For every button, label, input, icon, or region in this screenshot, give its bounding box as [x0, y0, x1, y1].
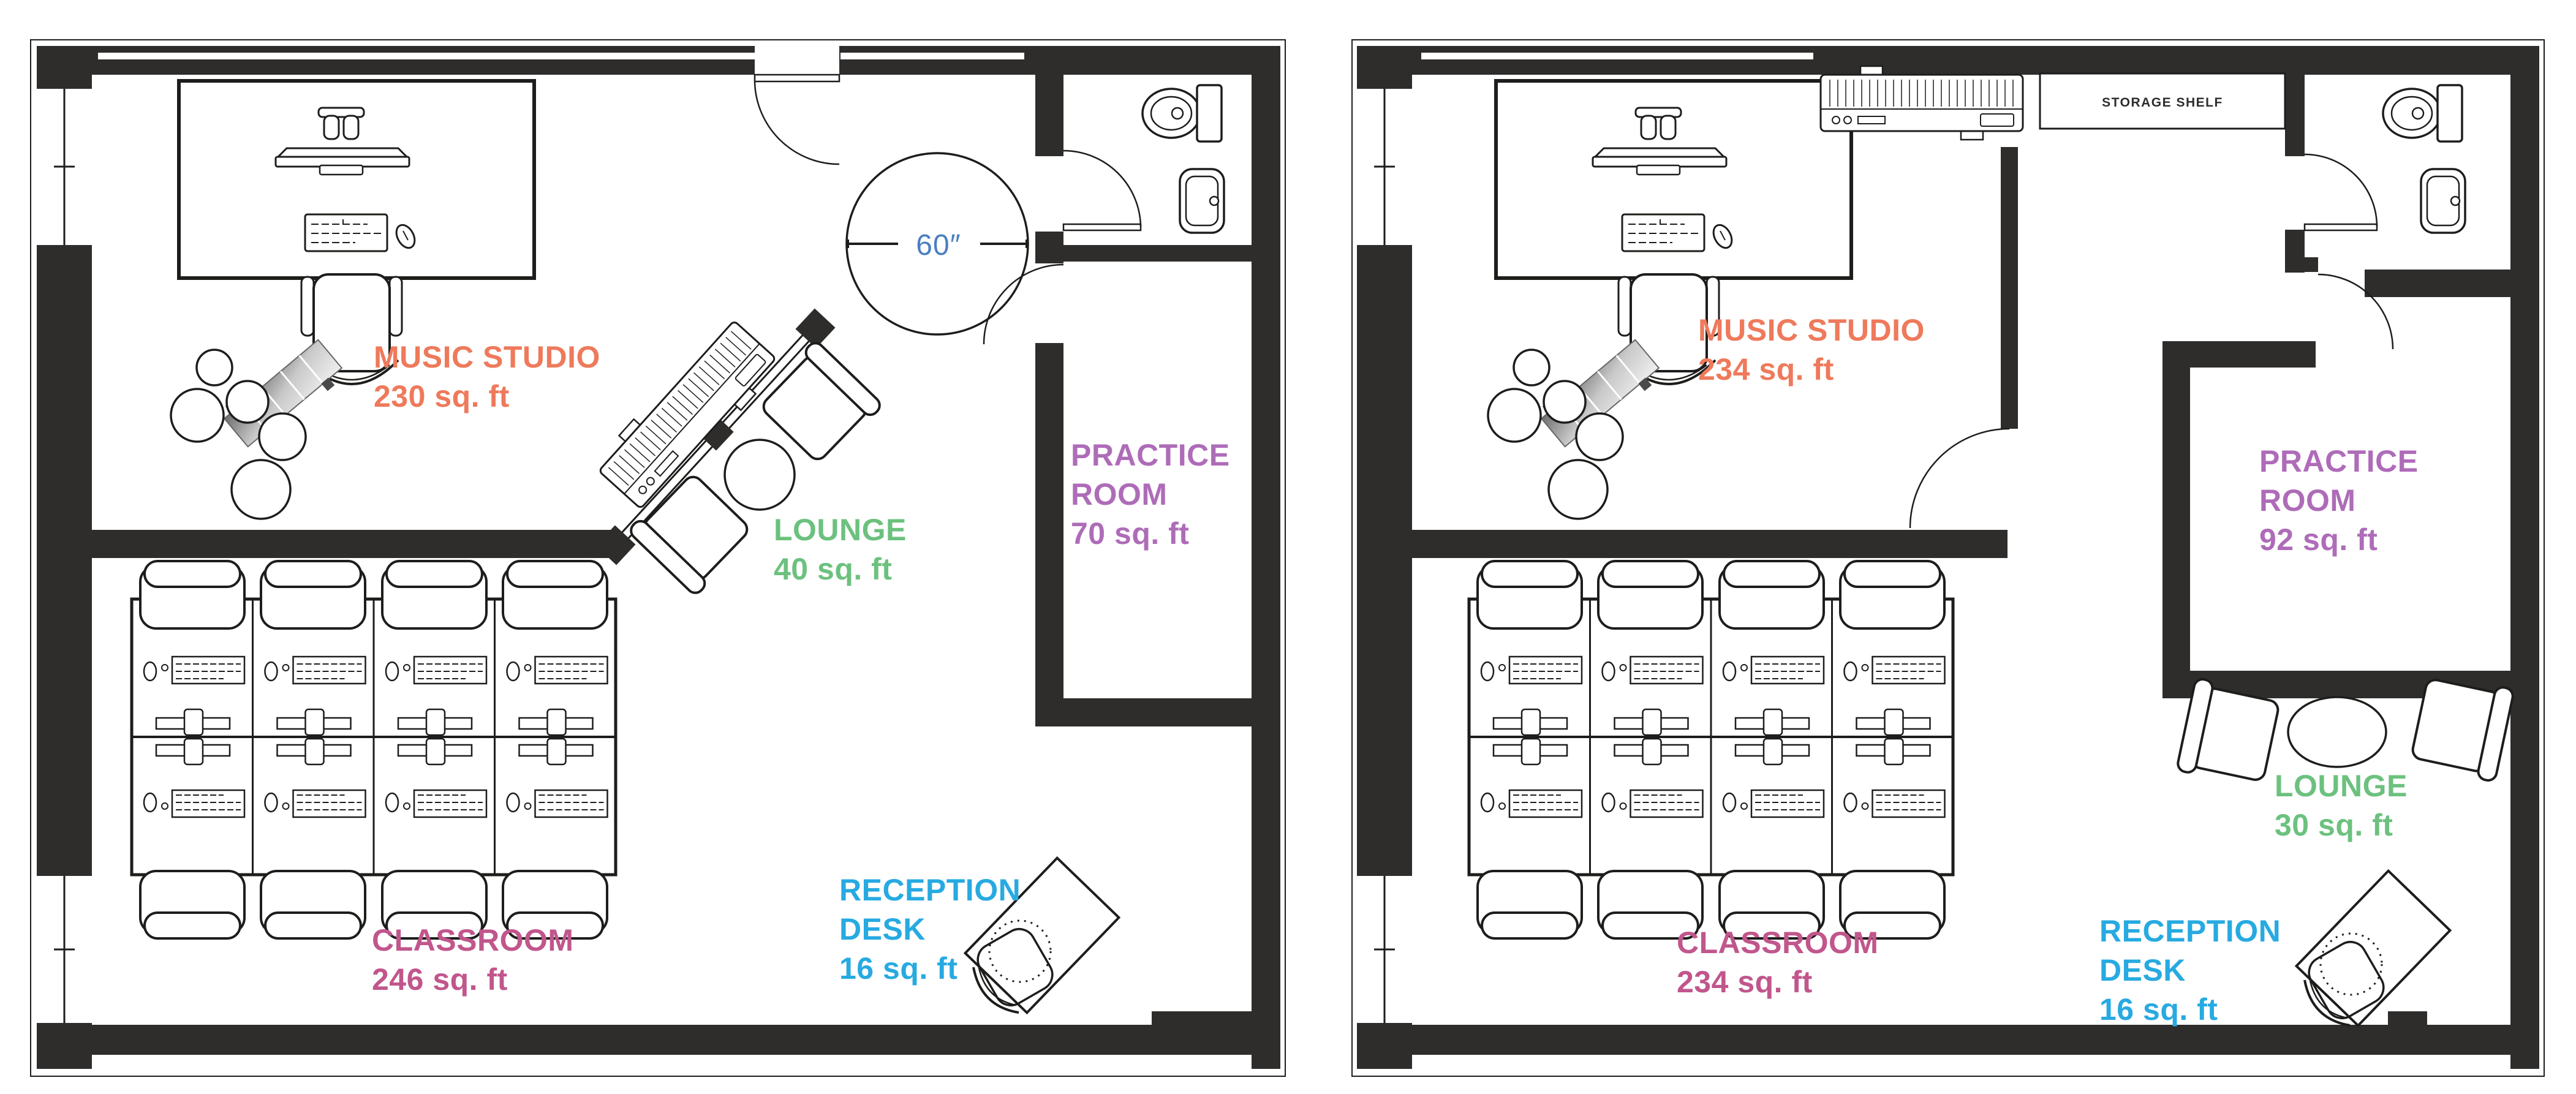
practice-room-label: PRACTICE	[2259, 444, 2419, 478]
entry-door-swing	[755, 82, 839, 164]
floor-plan-canvas: MUSIC STUDIO 230 sq. ft LOUNGE 40 sq. ft…	[0, 0, 2576, 1094]
bathroom-wall	[1035, 245, 1253, 262]
practice-room-area: 92 sq. ft	[2259, 522, 2378, 557]
classroom-area: 234 sq. ft	[1677, 965, 1813, 999]
round-table	[725, 440, 795, 510]
reception-label2: DESK	[2099, 953, 2186, 987]
studio-wall	[37, 530, 616, 558]
storage-shelf: STORAGE SHELF	[2040, 74, 2285, 129]
practice-room-area: 70 sq. ft	[1071, 516, 1189, 551]
toilet	[2383, 85, 2462, 141]
lounge-area: 40 sq. ft	[774, 552, 892, 586]
practice-room-label: PRACTICE	[1071, 438, 1230, 472]
bathroom-wall	[2365, 270, 2539, 297]
floor-plan-option-1: MUSIC STUDIO 230 sq. ft LOUNGE 40 sq. ft…	[31, 40, 1285, 1076]
window	[37, 876, 92, 1023]
lounge-table	[2288, 697, 2386, 767]
producer-desk	[179, 81, 534, 384]
reception-label: RECEPTION	[2099, 914, 2281, 948]
practice-wall	[1035, 698, 1280, 726]
door-clearance-dimension: 60″	[916, 229, 961, 262]
entry-door-leaf	[755, 75, 839, 81]
studio-door-swing	[1910, 429, 2009, 528]
bathroom-door-leaf	[1063, 224, 1141, 230]
bathroom-door-swing	[2305, 154, 2377, 227]
reception-desk-furniture	[2297, 871, 2450, 1026]
drum-kit	[1488, 333, 1664, 519]
drum-kit	[171, 333, 347, 519]
storage-shelf-label: STORAGE SHELF	[2102, 96, 2223, 110]
bathroom-door-swing	[1063, 151, 1141, 227]
keyboard	[1821, 66, 2023, 140]
studio-side-wall	[2001, 147, 2018, 429]
window	[1357, 89, 1412, 245]
classroom-desks	[1469, 561, 1953, 938]
practice-room-label2: ROOM	[2259, 483, 2356, 518]
lounge-area: 30 sq. ft	[2275, 808, 2393, 842]
music-studio-label: MUSIC STUDIO	[374, 340, 600, 374]
classroom-label: CLASSROOM	[372, 923, 574, 957]
music-studio-area: 234 sq. ft	[1698, 352, 1834, 387]
reception-area: 16 sq. ft	[2099, 992, 2218, 1027]
practice-room-label2: ROOM	[1071, 477, 1168, 511]
music-studio-area: 230 sq. ft	[374, 379, 510, 413]
reception-area: 16 sq. ft	[839, 951, 958, 986]
sink	[2421, 169, 2465, 233]
lounge-label: LOUNGE	[2275, 769, 2408, 803]
classroom-label: CLASSROOM	[1677, 926, 1879, 960]
music-studio-label: MUSIC STUDIO	[1698, 313, 1925, 347]
bathroom-door-leaf	[2305, 224, 2377, 230]
floor-plan-page: MUSIC STUDIO 230 sq. ft LOUNGE 40 sq. ft…	[0, 0, 2576, 1094]
studio-wall	[1357, 530, 2008, 558]
doors	[755, 46, 1141, 344]
window	[1357, 876, 1412, 1023]
toilet	[1143, 85, 1222, 141]
practice-door-swing	[984, 265, 1063, 344]
reception-label2: DESK	[839, 912, 926, 946]
window	[37, 89, 92, 245]
lounge-label: LOUNGE	[774, 513, 907, 547]
classroom-area: 246 sq. ft	[372, 962, 508, 997]
lounge-chair	[2409, 671, 2514, 782]
classroom-desks	[132, 561, 616, 938]
reception-label: RECEPTION	[839, 873, 1021, 907]
sink	[1180, 169, 1224, 233]
floor-plan-option-2: STORAGE SHELF	[1352, 40, 2544, 1076]
practice-wall-left	[2162, 341, 2190, 698]
